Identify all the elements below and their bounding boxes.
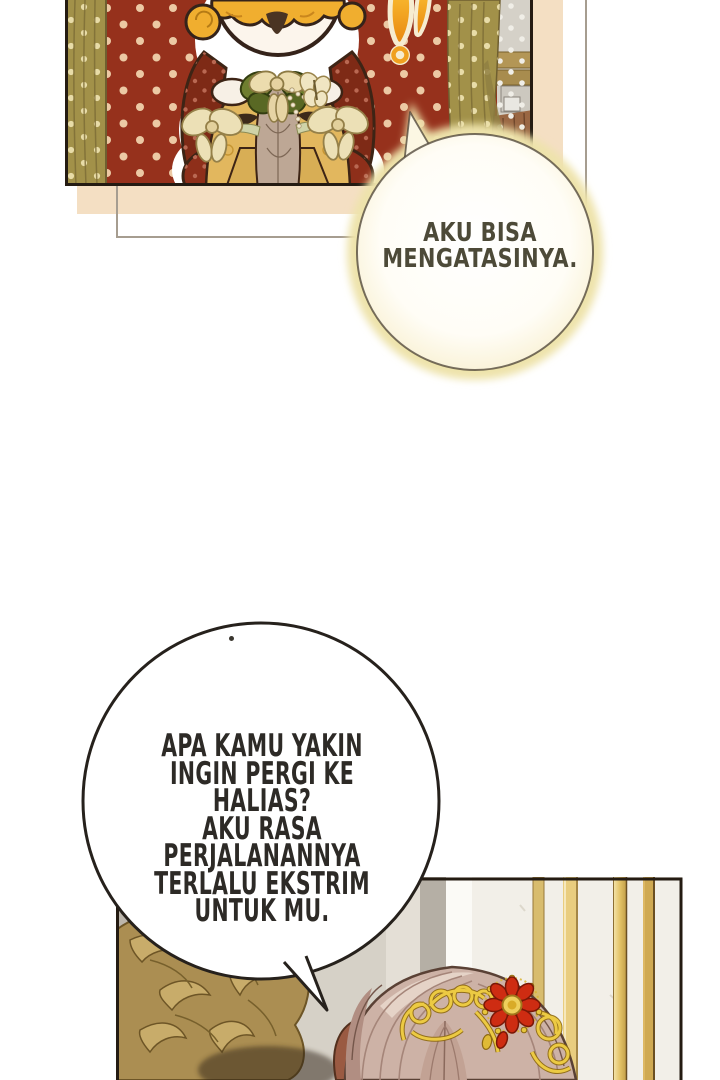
comic-artwork	[0, 0, 720, 1080]
curtain-left	[65, 0, 106, 186]
comic-page: AKU BISA MENGATASINYA. APA KAMU YAKIN IN…	[0, 0, 720, 1080]
chibi-character	[172, 0, 384, 208]
speck-dot	[229, 636, 234, 641]
